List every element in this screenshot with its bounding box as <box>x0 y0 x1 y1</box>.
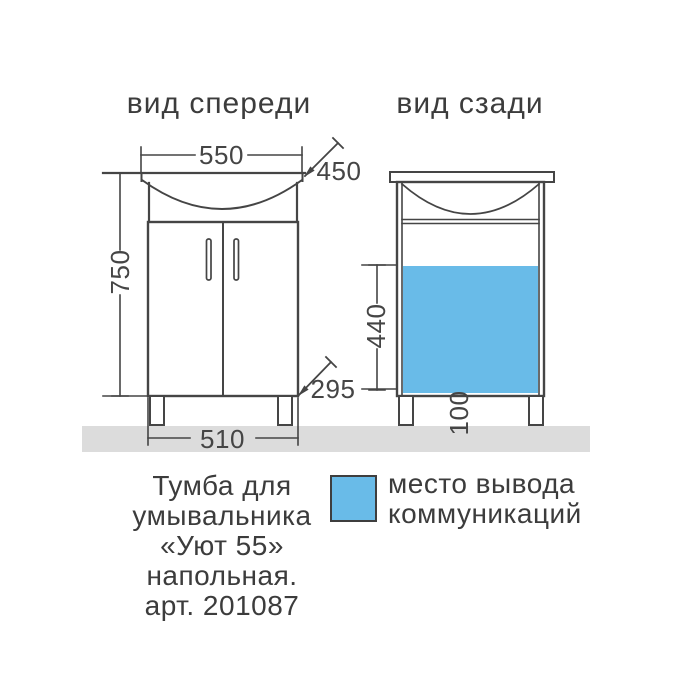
front-left-door-handle <box>207 239 212 280</box>
dim-cabinet-width-label: 510 <box>191 424 254 455</box>
front-sink-bowl-arc <box>142 180 302 209</box>
front-sink-walls <box>149 183 297 222</box>
front-right-leg <box>278 396 292 425</box>
legend-line-2: коммуникаций <box>388 499 582 529</box>
dim-sink-width-label: 550 <box>190 140 253 171</box>
caption-line-3: «Уют 55» <box>117 531 327 561</box>
back-view-title: вид сзади <box>360 87 580 121</box>
front-sink-edges <box>142 173 303 181</box>
legend-label: место вывода коммуникаций <box>388 469 582 529</box>
front-right-door-handle <box>234 239 239 280</box>
product-caption: Тумба для умывальника «Уют 55» напольная… <box>117 471 327 621</box>
caption-line-5: арт. 201087 <box>117 591 327 621</box>
legend-line-1: место вывода <box>388 469 582 499</box>
dim-communications-height-label: 440 <box>362 294 390 358</box>
caption-line-1: Тумба для <box>117 471 327 501</box>
caption-line-2: умывальника <box>117 501 327 531</box>
dim-height-label: 750 <box>106 240 134 304</box>
dim-depth-label: 450 <box>312 156 366 187</box>
back-countertop-slab <box>390 172 554 182</box>
product-dimension-diagram: вид спереди вид сзади 550 450 750 295 51… <box>0 0 700 700</box>
back-right-leg <box>529 396 543 425</box>
dim-leg-height-label: 100 <box>445 381 473 445</box>
front-view-title: вид спереди <box>109 87 329 121</box>
legend-swatch <box>330 475 377 522</box>
dim-corner-offset-label: 295 <box>306 374 360 405</box>
back-communications-area <box>403 266 538 393</box>
caption-line-4: напольная. <box>117 561 327 591</box>
front-left-leg <box>150 396 164 425</box>
floor-strip <box>82 426 590 452</box>
diagram-svg <box>0 0 700 700</box>
back-left-leg <box>399 396 413 425</box>
